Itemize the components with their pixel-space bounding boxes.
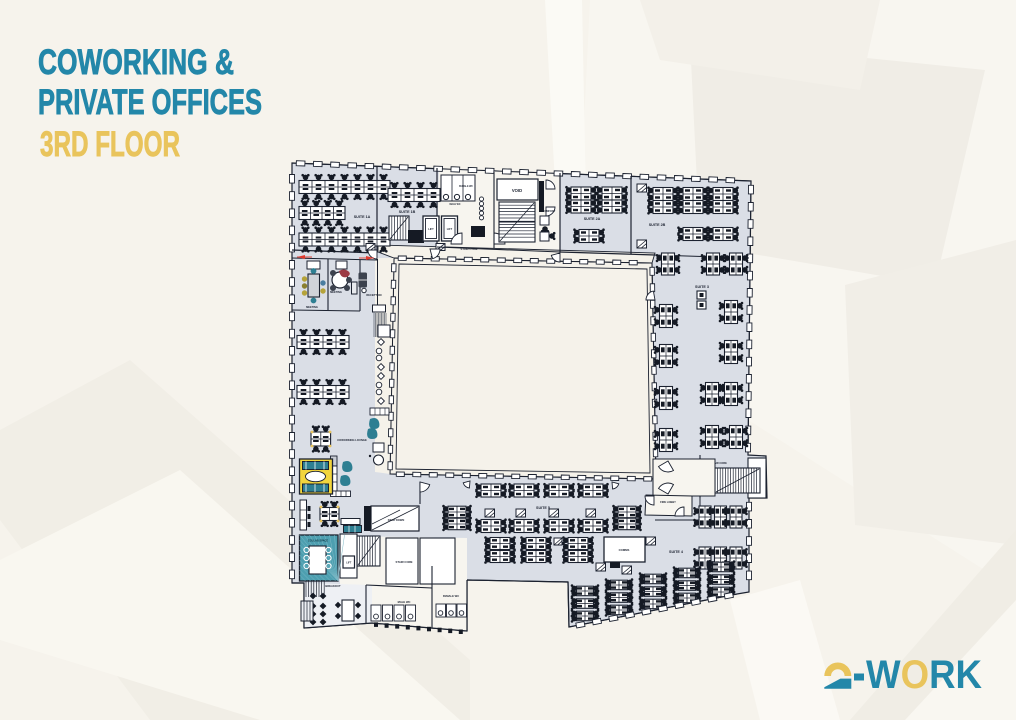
svg-text:SUITE 1B: SUITE 1B xyxy=(399,210,416,214)
svg-text:BREAKOUT: BREAKOUT xyxy=(325,584,341,588)
svg-text:COWORKING &: COWORKING & xyxy=(38,42,234,82)
svg-text:COMMS: COMMS xyxy=(619,548,630,552)
svg-text:MEETING: MEETING xyxy=(306,305,318,309)
svg-text:3RD FLOOR: 3RD FLOOR xyxy=(40,124,180,164)
svg-text:FIRE LOBBY: FIRE LOBBY xyxy=(660,500,676,504)
svg-text:COWORKING LOUNGE: COWORKING LOUNGE xyxy=(337,438,367,442)
svg-text:SUITE 1A: SUITE 1A xyxy=(354,215,371,219)
svg-text:SUITE 5: SUITE 5 xyxy=(536,506,550,510)
svg-text:COLLAB SPACE: COLLAB SPACE xyxy=(308,539,329,543)
svg-text:RAMP DOWN: RAMP DOWN xyxy=(388,518,405,522)
svg-text:SUITE 2A: SUITE 2A xyxy=(584,217,601,221)
svg-text:STAIR CORE: STAIR CORE xyxy=(395,560,412,564)
svg-text:LIFT: LIFT xyxy=(428,227,434,231)
svg-text:MALE WC: MALE WC xyxy=(398,600,411,604)
svg-text:COMFORT: COMFORT xyxy=(543,210,556,213)
svg-text:SUITE 4: SUITE 4 xyxy=(669,550,684,554)
svg-text:SUITE 3: SUITE 3 xyxy=(695,285,709,289)
svg-text:VOID: VOID xyxy=(512,188,522,193)
svg-text:LIFT: LIFT xyxy=(447,227,453,231)
svg-text:LIFT: LIFT xyxy=(346,562,352,565)
svg-text:FEMALE WC: FEMALE WC xyxy=(443,594,459,598)
svg-text:SUITE 2B: SUITE 2B xyxy=(649,223,666,227)
svg-text:MEETING: MEETING xyxy=(330,290,342,294)
svg-text:PRIVATE OFFICES: PRIVATE OFFICES xyxy=(38,82,262,122)
svg-text:WORK: WORK xyxy=(866,653,982,697)
svg-text:RECEPTION: RECEPTION xyxy=(366,293,381,297)
svg-text:MALE WC: MALE WC xyxy=(450,203,461,206)
svg-text:FEMALE WC: FEMALE WC xyxy=(459,185,473,188)
